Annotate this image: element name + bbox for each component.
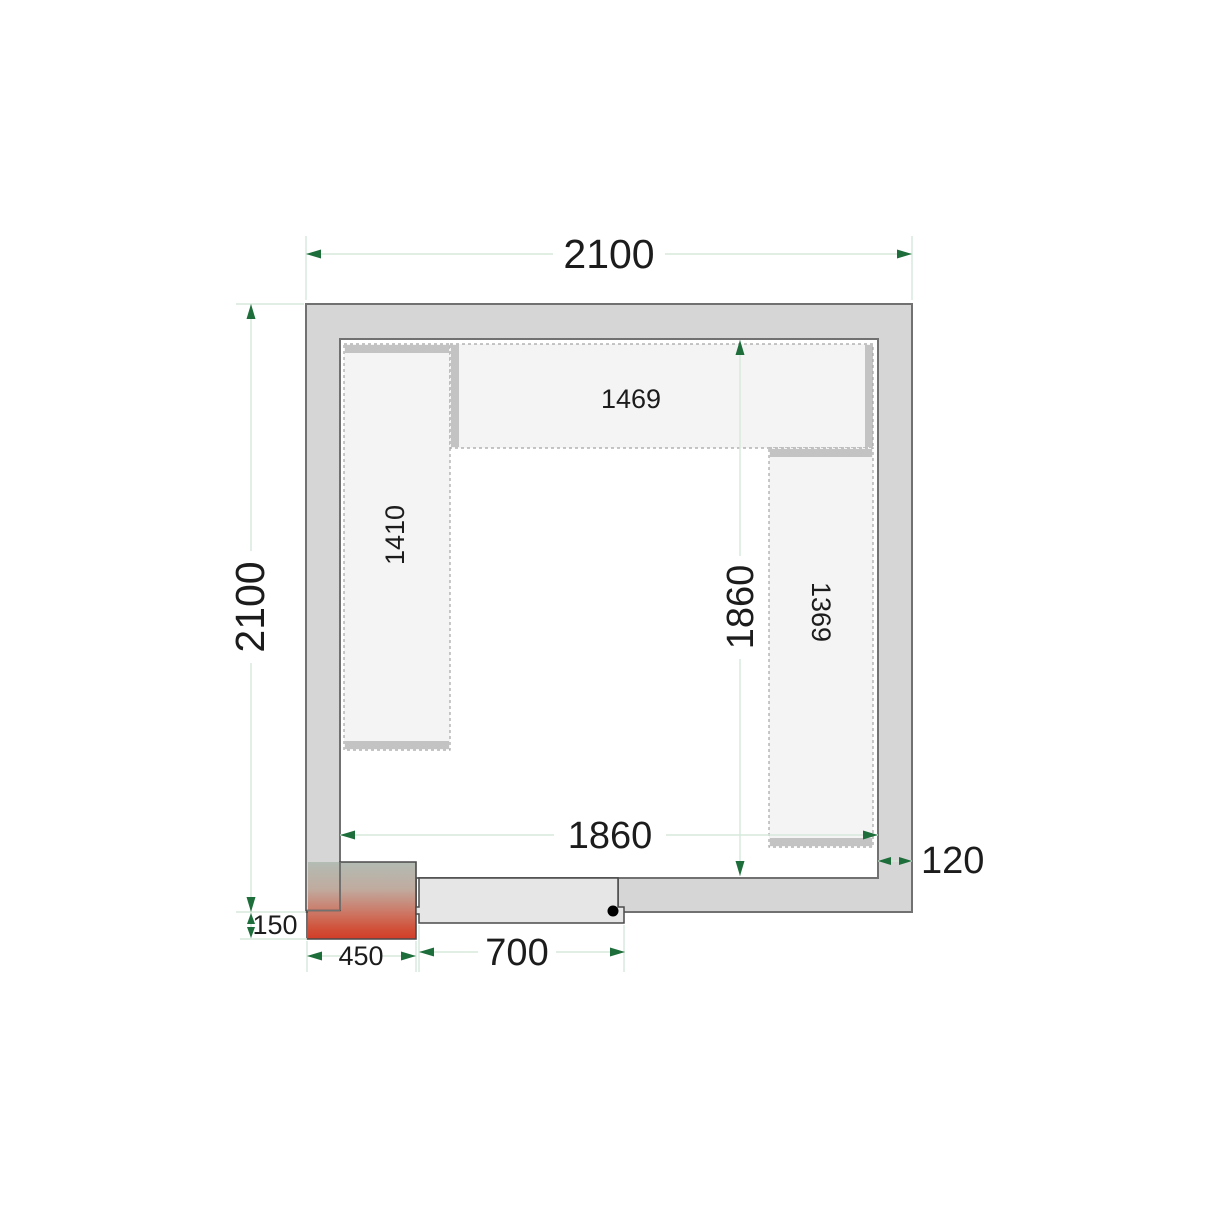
shelf-right-top-edge: [770, 449, 872, 457]
shelf-top-label: 1469: [601, 384, 661, 414]
shelf-left-bottom-edge: [345, 741, 449, 749]
shelf-right-bottom-edge: [770, 838, 872, 846]
door-leaf: [416, 878, 624, 923]
shelf-right-label: 1369: [806, 582, 836, 642]
dim-door-width-label: 700: [485, 932, 548, 974]
shelf-top-left-edge: [451, 345, 459, 447]
dim-unit-overhang: 150: [247, 910, 298, 940]
page-background: [0, 0, 1214, 1214]
shelf-left-top-edge: [345, 345, 449, 353]
dim-outer-width-label: 2100: [563, 231, 654, 277]
shelf-right-surface: [769, 448, 873, 847]
floorplan-drawing: 2100 2100 1860 1860 700 450: [0, 0, 1214, 1214]
shelf-top-surface: [450, 344, 873, 448]
dim-outer-height-label: 2100: [227, 561, 273, 652]
condensing-unit: [307, 862, 416, 939]
shelf-top: [450, 344, 873, 448]
dim-wall-thickness-label: 120: [921, 840, 984, 882]
cold-room-floorplan: 2100 2100 1860 1860 700 450: [0, 0, 1214, 1214]
door: [416, 878, 624, 923]
door-hinge-dot: [608, 906, 619, 917]
shelf-left-label: 1410: [380, 505, 410, 565]
condensing-unit-body: [308, 862, 416, 939]
dim-inner-height-label: 1860: [720, 565, 762, 650]
shelf-top-right-edge: [865, 345, 873, 447]
dim-unit-overhang-label: 150: [252, 910, 297, 940]
dim-inner-width-label: 1860: [568, 815, 653, 857]
shelf-right: [769, 448, 873, 847]
dim-unit-width-label: 450: [338, 941, 383, 971]
